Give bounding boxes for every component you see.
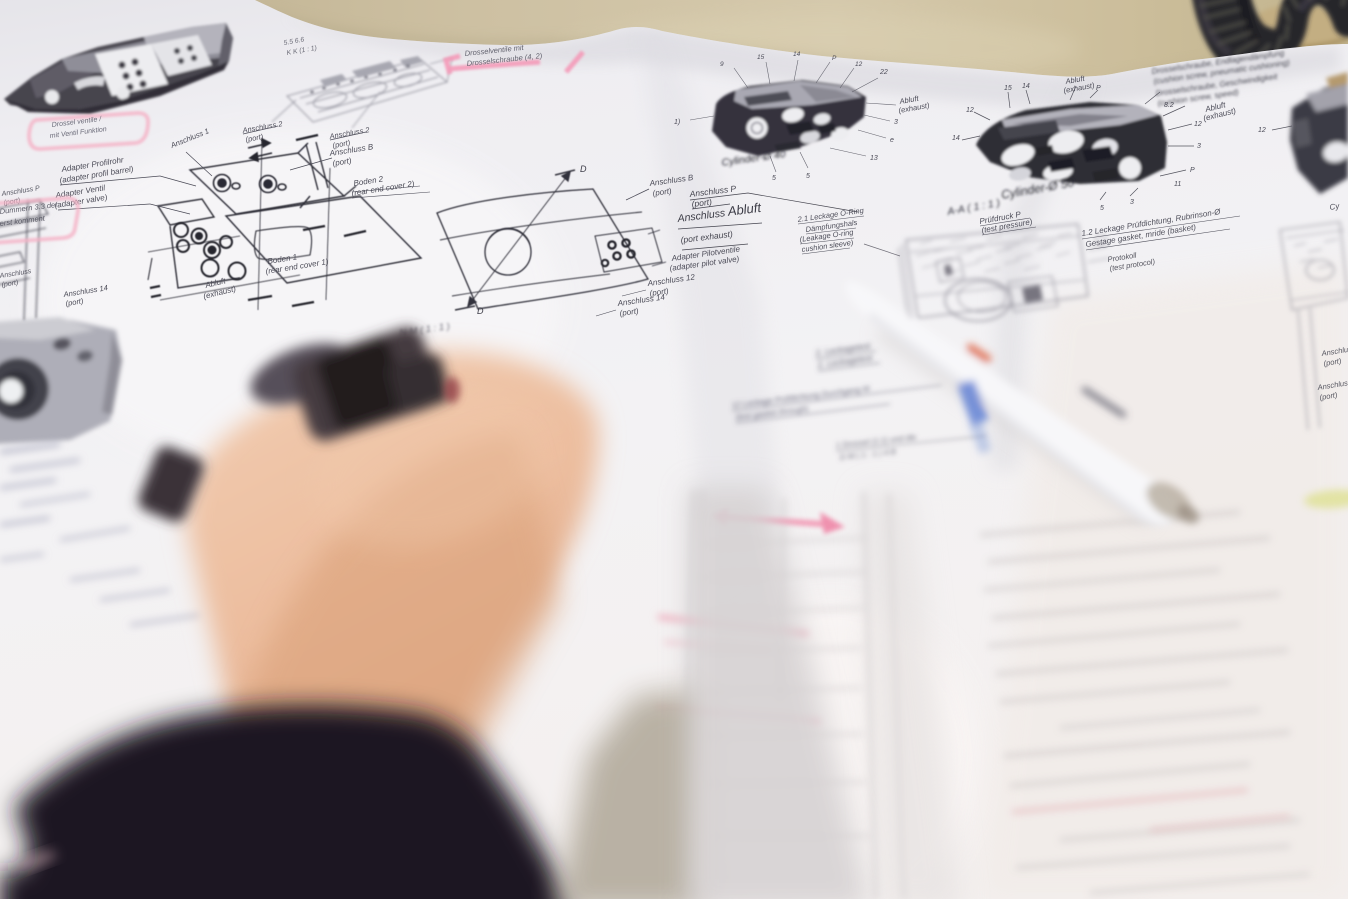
svg-text:12: 12 xyxy=(966,107,974,114)
svg-text:5: 5 xyxy=(806,173,810,180)
svg-text:e: e xyxy=(890,137,894,144)
svg-text:15: 15 xyxy=(757,54,765,61)
svg-text:P: P xyxy=(1190,167,1195,174)
svg-text:3: 3 xyxy=(894,119,898,126)
svg-text:D: D xyxy=(580,164,587,174)
svg-text:P: P xyxy=(832,55,837,62)
svg-text:9: 9 xyxy=(720,61,724,68)
svg-text:14: 14 xyxy=(793,51,801,58)
svg-text:22: 22 xyxy=(879,69,888,76)
svg-text:14: 14 xyxy=(952,135,960,142)
svg-text:13: 13 xyxy=(870,155,878,162)
svg-text:D: D xyxy=(477,306,484,316)
svg-text:3: 3 xyxy=(1130,199,1134,206)
svg-text:5: 5 xyxy=(1100,205,1104,212)
svg-text:12: 12 xyxy=(855,61,863,68)
svg-text:11: 11 xyxy=(1174,181,1181,188)
svg-text:P: P xyxy=(1096,85,1101,92)
svg-text:12: 12 xyxy=(1258,127,1266,134)
svg-text:15: 15 xyxy=(1004,85,1012,92)
svg-text:1): 1) xyxy=(674,119,680,126)
svg-text:12: 12 xyxy=(1194,121,1202,128)
svg-text:5: 5 xyxy=(772,175,776,182)
svg-text:14: 14 xyxy=(1022,83,1030,90)
svg-text:3: 3 xyxy=(1197,143,1201,150)
